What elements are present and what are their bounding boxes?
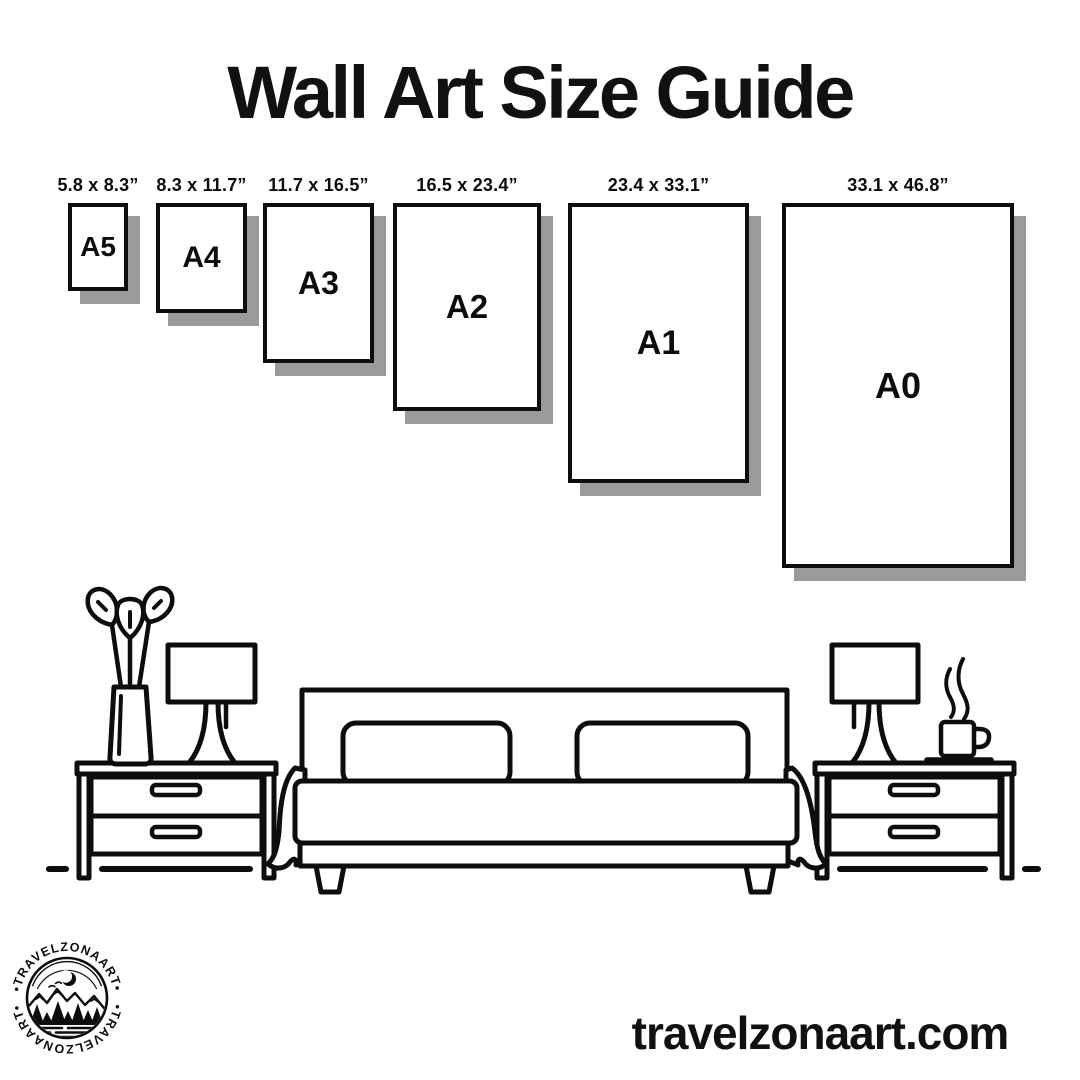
size-item-a3: 11.7 x 16.5” A3	[263, 203, 374, 363]
size-item-a0: 33.1 x 46.8” A0	[782, 203, 1014, 568]
pillow-right	[577, 723, 748, 785]
size-item-a4: 8.3 x 11.7” A4	[156, 203, 247, 313]
pillow-left	[343, 723, 510, 785]
website-url: travelzonaart.com	[560, 1006, 1080, 1060]
coffee-cup-icon	[927, 659, 991, 760]
size-dimensions-a2: 16.5 x 23.4”	[416, 175, 517, 196]
size-dimensions-a1: 23.4 x 33.1”	[608, 175, 709, 196]
mattress	[295, 781, 797, 843]
paper-a2: A2	[393, 203, 541, 411]
size-item-a2: 16.5 x 23.4” A2	[393, 203, 541, 411]
nightstand-right-icon	[815, 763, 1014, 878]
page-title: Wall Art Size Guide	[0, 50, 1080, 135]
paper-label-a2: A2	[446, 288, 488, 326]
paper-a1: A1	[568, 203, 749, 483]
paper-label-a0: A0	[875, 365, 921, 407]
bed-leg	[316, 866, 344, 892]
table-lamp-left-icon	[168, 645, 255, 763]
bed-leg	[746, 866, 774, 892]
size-item-a1: 23.4 x 33.1” A1	[568, 203, 749, 483]
bed-icon	[268, 690, 826, 892]
paper-a0: A0	[782, 203, 1014, 568]
bedroom-illustration	[0, 570, 1080, 910]
paper-a5: A5	[68, 203, 128, 291]
size-dimensions-a4: 8.3 x 11.7”	[156, 175, 246, 196]
steam-icon	[946, 669, 954, 717]
steam-icon	[959, 659, 968, 719]
size-dimensions-a3: 11.7 x 16.5”	[268, 175, 369, 196]
brand-logo-badge: •TRAVELZONAART• •TRAVELZONAART•	[6, 937, 128, 1059]
size-dimensions-a5: 5.8 x 8.3”	[57, 175, 138, 196]
paper-a3: A3	[263, 203, 374, 363]
paper-label-a4: A4	[182, 241, 220, 275]
paper-a4: A4	[156, 203, 247, 313]
bed-base	[300, 843, 788, 866]
paper-label-a5: A5	[80, 231, 116, 263]
size-item-a5: 5.8 x 8.3” A5	[68, 203, 128, 291]
size-dimensions-a0: 33.1 x 46.8”	[847, 175, 948, 196]
plant-vase-icon	[88, 588, 173, 764]
paper-label-a3: A3	[298, 265, 339, 302]
nightstand-left-icon	[77, 763, 276, 878]
table-lamp-right-icon	[832, 645, 918, 763]
paper-label-a1: A1	[637, 324, 680, 363]
wall-art-size-guide-poster: Wall Art Size Guide 5.8 x 8.3” A5 8.3 x …	[0, 0, 1080, 1080]
